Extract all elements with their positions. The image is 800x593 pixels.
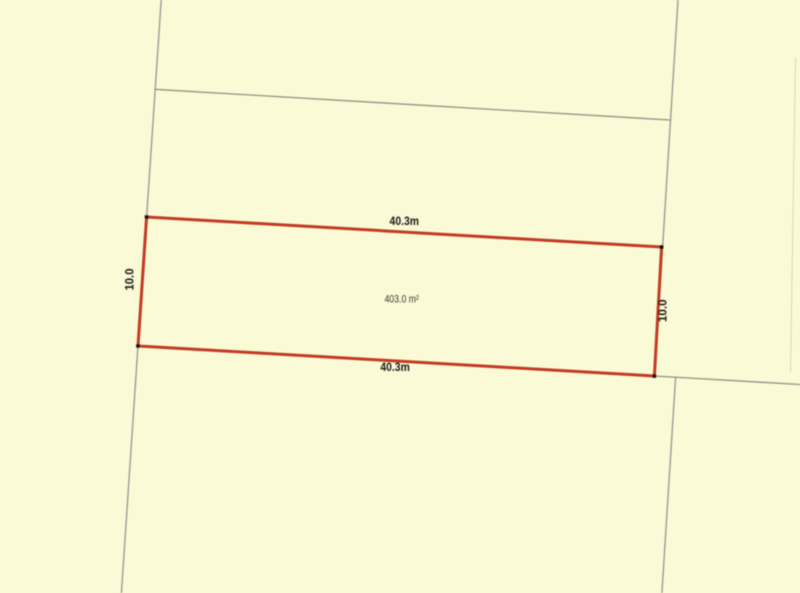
svg-text:40.3m: 40.3m xyxy=(380,360,410,374)
svg-text:10.0: 10.0 xyxy=(658,299,670,322)
svg-text:10.0: 10.0 xyxy=(125,269,137,291)
svg-text:40.3m: 40.3m xyxy=(390,214,420,228)
svg-text:403.0 m²: 403.0 m² xyxy=(384,293,419,305)
